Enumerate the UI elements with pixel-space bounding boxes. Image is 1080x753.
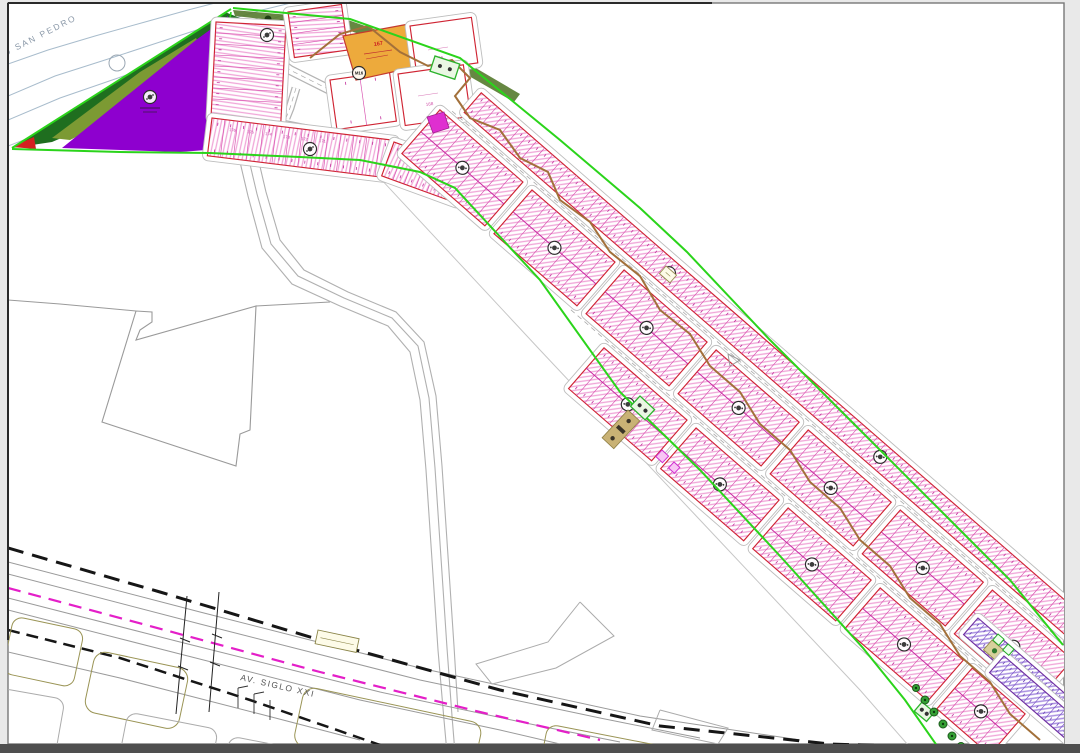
site-plan-viewer: AV. SIGLO XXI167166168176175174173172171…	[0, 0, 1080, 753]
fan-block-west	[206, 17, 291, 127]
block-body	[211, 22, 286, 122]
block-body	[288, 4, 348, 57]
corner-tree-center	[915, 687, 917, 689]
site-plan-svg: AV. SIGLO XXI167166168176175174173172171…	[0, 0, 1080, 753]
block-marker-glyph	[265, 33, 270, 38]
corner-tree-center	[951, 735, 953, 737]
orange-lot-number: 167	[373, 41, 383, 48]
park-area-marker-glyph	[148, 95, 153, 100]
corner-tree-center	[942, 723, 944, 725]
top-mid-block	[282, 0, 353, 63]
block-marker-m16-label: M16	[355, 71, 364, 76]
corner-tree-center	[924, 699, 926, 701]
corner-tree-center	[933, 711, 935, 713]
block-marker-glyph	[308, 147, 313, 152]
bottom-bar	[0, 744, 1080, 753]
